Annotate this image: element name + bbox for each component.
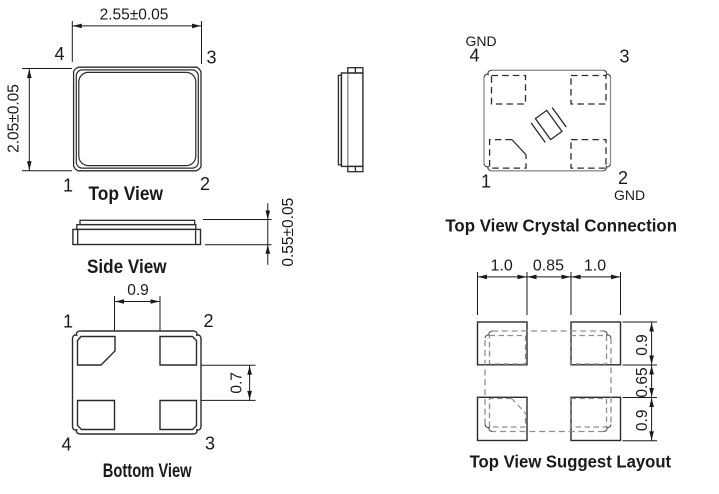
- svg-text:0.55±0.05: 0.55±0.05: [280, 198, 297, 267]
- svg-text:1: 1: [63, 175, 73, 195]
- svg-text:0.65: 0.65: [634, 367, 651, 397]
- svg-text:1.0: 1.0: [490, 258, 512, 275]
- svg-text:2: 2: [200, 174, 210, 194]
- svg-text:1: 1: [63, 312, 73, 332]
- svg-text:2: 2: [203, 311, 213, 331]
- svg-text:1.0: 1.0: [584, 258, 606, 275]
- svg-text:1: 1: [481, 171, 491, 191]
- svg-text:0.9: 0.9: [634, 334, 651, 356]
- svg-text:2.55±0.05: 2.55±0.05: [100, 7, 169, 24]
- svg-text:4: 4: [61, 434, 71, 454]
- svg-text:Side View: Side View: [87, 256, 167, 278]
- svg-text:GND: GND: [614, 187, 645, 203]
- svg-text:0.7: 0.7: [229, 372, 246, 394]
- svg-text:Top View Suggest Layout: Top View Suggest Layout: [470, 451, 672, 471]
- svg-text:0.85: 0.85: [533, 258, 564, 275]
- svg-text:2: 2: [618, 168, 628, 188]
- svg-text:Bottom View: Bottom View: [103, 460, 192, 482]
- svg-text:Top View: Top View: [89, 183, 164, 205]
- svg-text:3: 3: [619, 46, 629, 66]
- svg-text:0.9: 0.9: [634, 410, 651, 432]
- svg-text:0.9: 0.9: [127, 282, 149, 299]
- svg-text:3: 3: [205, 434, 215, 454]
- svg-text:GND: GND: [465, 33, 496, 49]
- svg-text:Top View Crystal Connection: Top View Crystal Connection: [445, 216, 677, 236]
- svg-text:4: 4: [54, 44, 64, 64]
- svg-text:2.05±0.05: 2.05±0.05: [6, 84, 23, 153]
- svg-text:3: 3: [206, 47, 216, 67]
